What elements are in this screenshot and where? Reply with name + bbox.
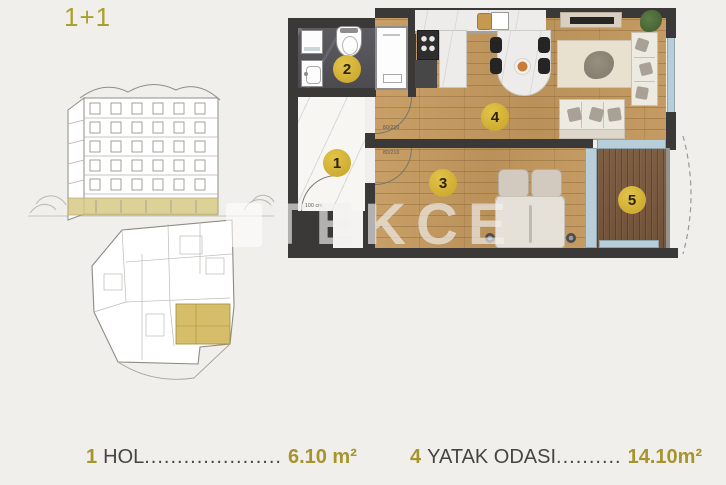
kitchen-base-cabinet bbox=[415, 60, 437, 88]
room-marker-room3: 3 bbox=[429, 169, 457, 197]
bedside-lamp bbox=[485, 233, 495, 243]
legend-entry-hall: 1HOL.....................6.10 m² bbox=[86, 446, 357, 469]
room-marker-number: 2 bbox=[343, 61, 351, 78]
legend-room-area: 6.10 m² bbox=[288, 446, 357, 468]
bedside-lamp bbox=[566, 233, 576, 243]
wall-left bbox=[288, 18, 298, 258]
bed-pillow bbox=[531, 169, 562, 198]
room-marker-number: 1 bbox=[333, 155, 341, 172]
balcony-side-window bbox=[585, 148, 597, 248]
balcony-curve-dashed-line bbox=[680, 136, 700, 254]
stove bbox=[417, 30, 439, 60]
wall-living-bedroom bbox=[370, 139, 593, 148]
room-marker-hall: 1 bbox=[323, 149, 351, 177]
sofa-right bbox=[631, 32, 658, 106]
legend-room-number: 4 bbox=[410, 446, 421, 468]
balcony-top-window bbox=[597, 139, 666, 149]
wall-bathroom-top bbox=[288, 18, 375, 28]
wall-hall-right-a bbox=[365, 88, 375, 97]
wall-bottom bbox=[288, 248, 678, 258]
dining-chair bbox=[490, 58, 502, 74]
wall-hall-right-c bbox=[365, 183, 375, 248]
kitchen-cup bbox=[477, 13, 492, 30]
room-marker-number: 3 bbox=[439, 175, 447, 192]
legend-room-area: 14.10m² bbox=[628, 446, 703, 468]
rug bbox=[557, 40, 635, 88]
living-right-window bbox=[667, 35, 675, 115]
bed-duvet bbox=[495, 196, 565, 248]
plan-type-label: 1+1 bbox=[64, 2, 111, 33]
bed bbox=[495, 167, 565, 248]
bedroom-door-dimension-label: 80/210 bbox=[383, 150, 400, 156]
legend-entry-bedroom: 4YATAK ODASI..........14.10m² bbox=[410, 446, 702, 469]
shower bbox=[375, 26, 408, 90]
floorplan-page: { "title": "1+1", "watermark": { "text":… bbox=[0, 0, 726, 485]
kitchen-upper-sink bbox=[491, 12, 509, 30]
dining-chair bbox=[490, 37, 502, 53]
dining-chair bbox=[538, 37, 550, 53]
floor-key-plan bbox=[82, 214, 270, 386]
bed-pillow bbox=[498, 169, 529, 198]
kitchen-counter-column bbox=[439, 30, 467, 88]
room-marker-number: 4 bbox=[491, 109, 499, 126]
legend-room-name: HOL bbox=[103, 446, 144, 468]
balcony-bottom-window bbox=[599, 240, 659, 248]
wall-right bbox=[666, 8, 676, 38]
sofa-bottom bbox=[559, 99, 625, 139]
room-marker-balcony: 5 bbox=[618, 186, 646, 214]
legend-room-name: YATAK ODASI bbox=[427, 446, 556, 468]
washing-machine bbox=[301, 30, 323, 54]
room-marker-room4: 4 bbox=[481, 103, 509, 131]
room-marker-number: 5 bbox=[628, 192, 636, 209]
living-door-dimension-label: 80/210 bbox=[383, 125, 400, 131]
tv-console bbox=[560, 12, 622, 28]
balcony-right-edge bbox=[666, 148, 670, 248]
dining-chair bbox=[538, 58, 550, 74]
wall-right-lower bbox=[666, 112, 676, 150]
legend-dots: .......... bbox=[556, 446, 622, 468]
toilet bbox=[336, 26, 362, 57]
entrance-opening bbox=[333, 211, 363, 248]
bathroom-sink bbox=[301, 60, 323, 87]
room-marker-bathroom: 2 bbox=[333, 55, 361, 83]
food-plate bbox=[514, 58, 531, 75]
entrance-dimension-label: 100 cm bbox=[305, 203, 323, 209]
legend-dots: ..................... bbox=[144, 446, 282, 468]
legend-room-number: 1 bbox=[86, 446, 97, 468]
apartment-floor-plan: 100 cm 80/210 80/210 1 2 3 4 5 bbox=[288, 0, 708, 262]
wall-bathroom-bottom bbox=[288, 88, 376, 97]
